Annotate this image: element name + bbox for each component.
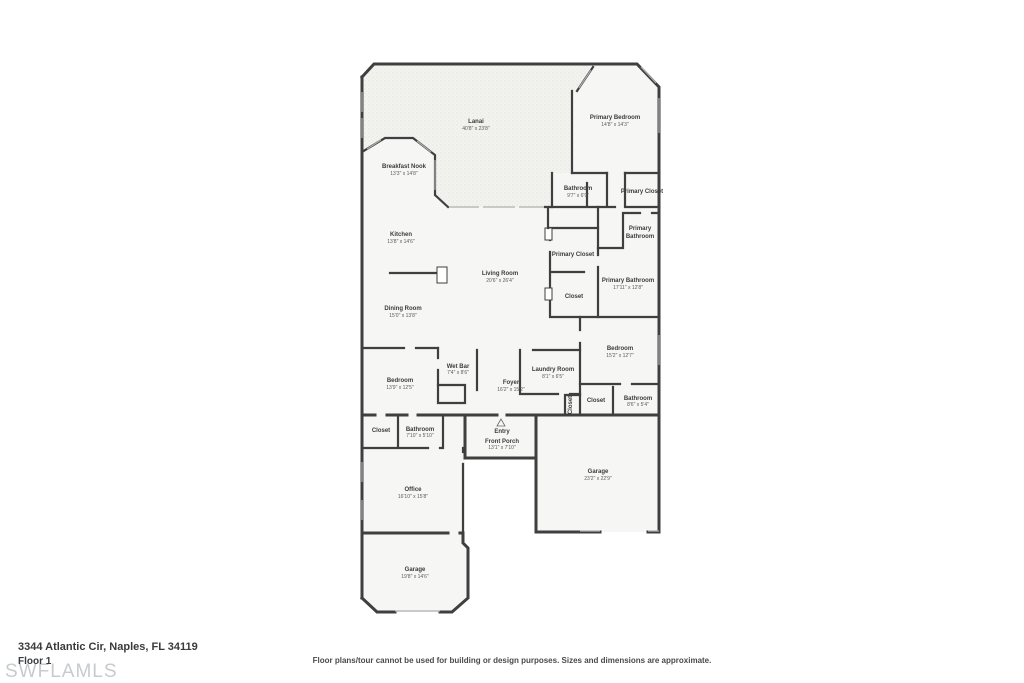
room-label-closet-left: Closet — [372, 428, 390, 434]
room-dims-bathroom-left: 7'10" x 5'10" — [406, 433, 434, 439]
floorplan-svg: Lanai 40'8" x 23'8" Primary Bedroom 14'8… — [0, 0, 1024, 682]
room-dims-bedroom-left: 13'9" x 12'5" — [386, 385, 414, 391]
room-dims-dining-room: 15'0" x 13'8" — [389, 313, 417, 319]
room-label-primary-bathroom-small-2: Bathroom — [626, 234, 654, 240]
floor-fills — [362, 64, 659, 612]
room-dims-bedroom-right: 15'2" x 12'7" — [606, 353, 634, 359]
room-dims-living-room: 20'6" x 26'4" — [486, 278, 514, 284]
room-dims-kitchen: 13'8" x 14'6" — [387, 239, 415, 245]
room-dims-breakfast-nook: 13'3" x 14'8" — [390, 171, 418, 177]
room-label-primary-closet-top: Primary Closet — [621, 189, 663, 195]
room-label-office: Office — [404, 487, 422, 493]
room-dims-primary-bathroom: 17'11" x 12'8" — [613, 285, 643, 291]
room-label-kitchen: Kitchen — [390, 232, 412, 238]
room-label-primary-bedroom: Primary Bedroom — [590, 115, 640, 121]
room-label-dining-room: Dining Room — [384, 306, 421, 312]
room-dims-primary-bedroom: 14'8" x 14'3" — [601, 122, 629, 128]
room-dims-bathroom-top: 9'7" x 6'9" — [567, 193, 589, 199]
room-dims-front-porch: 13'1" x 7'10" — [488, 445, 516, 451]
room-dims-foyer: 16'2" x 15'2" — [497, 387, 525, 393]
room-label-living-room: Living Room — [482, 271, 518, 277]
room-label-breakfast-nook: Breakfast Nook — [382, 164, 427, 170]
room-dims-bathroom-right: 8'6" x 5'4" — [627, 402, 649, 408]
room-label-foyer: Foyer — [503, 380, 520, 386]
room-dims-wet-bar: 7'4" x 8'6" — [447, 370, 469, 376]
room-label-primary-bathroom-small-1: Primary — [629, 226, 652, 232]
room-dims-laundry-room: 8'1" x 6'5" — [542, 374, 564, 380]
room-dims-garage-bottom: 19'8" x 14'6" — [401, 574, 429, 580]
disclaimer-text: Floor plans/tour cannot be used for buil… — [0, 656, 1024, 665]
room-label-closet-right: Closet — [587, 398, 605, 404]
room-label-bathroom-top: Bathroom — [564, 186, 592, 192]
room-label-bedroom-left: Bedroom — [387, 378, 413, 384]
room-dims-office: 16'10" x 15'8" — [398, 494, 428, 500]
room-label-entry: Entry — [494, 429, 510, 435]
room-label-primary-closet-mid: Primary Closet — [552, 252, 594, 258]
room-label-primary-bathroom: Primary Bathroom — [602, 278, 654, 284]
room-label-garage-bottom: Garage — [405, 567, 426, 573]
room-label-closet-vertical: Closet — [568, 396, 574, 414]
room-label-closet-primary: Closet — [565, 294, 583, 300]
room-label-garage-right: Garage — [588, 469, 609, 475]
room-label-lanai: Lanai — [468, 119, 484, 125]
room-dims-garage-right: 23'2" x 22'9" — [584, 476, 612, 482]
room-label-laundry-room: Laundry Room — [532, 367, 574, 373]
room-dims-lanai: 40'8" x 23'8" — [462, 126, 490, 132]
property-address: 3344 Atlantic Cir, Naples, FL 34119 — [18, 641, 198, 653]
room-label-bedroom-right: Bedroom — [607, 346, 633, 352]
